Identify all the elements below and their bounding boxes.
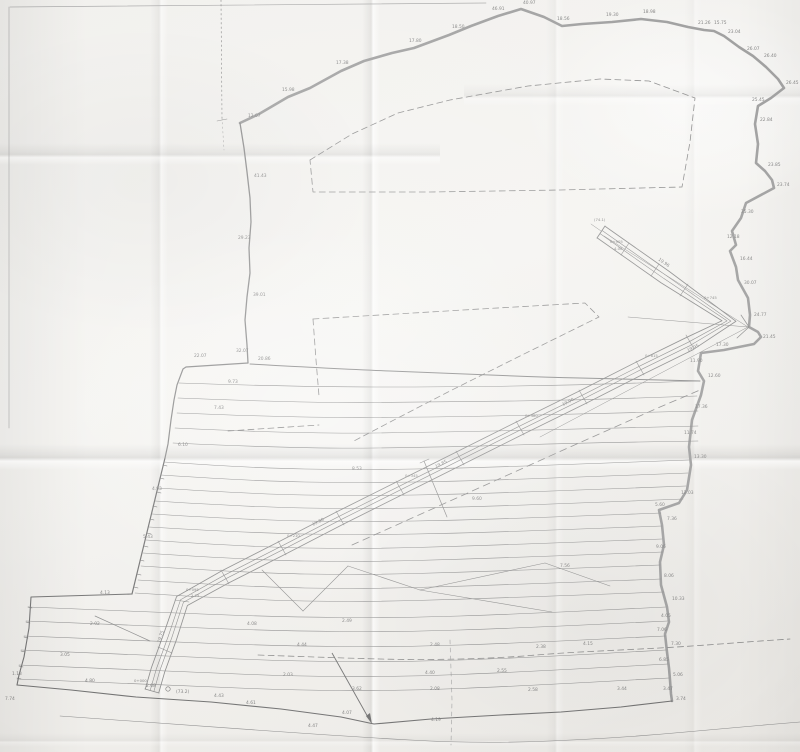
dimension-line [604, 236, 748, 327]
measurement-label: 11.90 [690, 358, 703, 364]
measurement-label: 9.06 [656, 544, 666, 550]
measurement-label: 15.75 [714, 20, 727, 26]
strip-line [141, 565, 660, 574]
strip-line [21, 650, 666, 662]
measurement-label: 2.08 [146, 683, 156, 689]
measurement-label: 6.10 [178, 442, 188, 448]
terrain-line-outside [60, 716, 800, 742]
measurement-label: 4.93 [152, 486, 162, 492]
measurement-label: 2.58 [528, 687, 538, 693]
measurement-label: 8.06 [664, 573, 674, 579]
measurement-label: 4.07 [342, 710, 352, 716]
measurement-label: 12.03 [681, 490, 694, 496]
measurement-label: 4.08 [247, 621, 257, 627]
hatch-tick [144, 546, 148, 547]
measurement-label: 2.02 [90, 621, 100, 627]
measurement-label: (73.2) [176, 689, 189, 695]
measurement-label: 3.74 [676, 696, 686, 702]
measurement-label: 26.40 [764, 53, 777, 59]
measurement-label: 0+480 [525, 413, 538, 418]
measurement-label: 2.55 [497, 668, 507, 674]
benchmark-circle [166, 687, 170, 691]
field-mark [545, 563, 610, 586]
field-mark [348, 566, 420, 590]
corridor-leader [591, 224, 601, 231]
measurement-label: 16.44 [740, 256, 753, 262]
dashed-middle-quad-left [313, 319, 319, 396]
measurement-label: 12.18 [727, 234, 740, 240]
strip-line [173, 441, 698, 448]
measurement-label: 2.48 [430, 642, 440, 648]
measurement-label: 0+905 [610, 239, 623, 244]
measurement-label: 1.13 [12, 671, 22, 677]
corridor-tick [579, 390, 587, 404]
strip-line [177, 411, 698, 418]
measurement-label: 17.80 [409, 38, 422, 44]
measurement-label: 2.08 [430, 686, 440, 692]
strip-line [19, 664, 668, 677]
measurement-label: 23.85 [768, 162, 781, 168]
north-arrow [332, 653, 369, 719]
measurement-label: 12.07 [248, 113, 261, 119]
strip-line [146, 539, 662, 548]
measurement-label: 4.19 [431, 717, 441, 723]
measurement-label: 17.30 [716, 342, 729, 348]
measurement-label: 4.13 [100, 590, 110, 596]
boundary-hatched-diagonal [132, 458, 165, 594]
measurement-label: 12.60 [708, 373, 721, 379]
hatch-tick [157, 492, 161, 493]
measurement-label: 3.62 [352, 686, 362, 692]
strip-line [24, 636, 665, 647]
measurement-label: 29.23 [238, 235, 251, 241]
strip-line [17, 678, 669, 691]
measurement-label: 23.74 [777, 182, 790, 188]
measurement-label: 0+000 [134, 678, 147, 683]
measurement-label: 4.00 [614, 246, 623, 251]
measurement-label: 3.47 [663, 686, 673, 692]
hatch-tick [137, 574, 141, 575]
dashed-middle-short [228, 425, 319, 431]
dash-dot-tail [222, 118, 224, 150]
corridor-edge [159, 226, 736, 693]
corridor-tick [221, 570, 229, 584]
corridor-tick [396, 481, 404, 495]
measurement-label: 4.80 [85, 678, 95, 684]
corridor-tick [636, 361, 644, 375]
measurement-label: 4.43 [214, 693, 224, 699]
measurement-label: 5.43 [143, 534, 153, 540]
corridor-tick [456, 451, 464, 465]
measurement-label: 3.44 [617, 686, 627, 692]
dashed-middle-quad-top [313, 303, 599, 442]
dashed-bottom-vertical [450, 640, 452, 745]
measurement-label: 19.30 [606, 12, 619, 18]
boundary-bottom [17, 685, 672, 724]
measurement-label: 0+615 [645, 353, 658, 358]
measurement-label: 19.80 [311, 517, 325, 528]
measurement-label: 8.53 [352, 466, 362, 472]
measurement-label: 26.07 [747, 46, 760, 52]
measurement-label: 0+210 [287, 533, 300, 538]
measure-diagonal [424, 461, 447, 517]
measurement-label: 2.03 [283, 672, 293, 678]
measurement-label: 24.77 [754, 312, 767, 318]
hatch-tick [147, 533, 151, 534]
measurement-label: 0+745 [704, 295, 717, 300]
boundary-left-upper [240, 123, 251, 363]
measurement-label: 22.84 [760, 117, 773, 123]
measurement-label: 0+345 [405, 473, 418, 478]
corridor-tick [158, 647, 172, 653]
corridor-edge [145, 238, 722, 689]
measurement-label: 7.74 [5, 696, 15, 702]
measurement-label: 7.36 [667, 516, 677, 522]
corridor-end-cap [145, 689, 159, 693]
measurement-label: 18.50 [452, 24, 465, 30]
measurement-label: 19.95 [686, 343, 700, 354]
field-mark [262, 570, 303, 611]
measurement-label: 15.98 [282, 87, 295, 93]
strip-line [143, 552, 663, 561]
measurement-label: 22.07 [194, 353, 207, 359]
measurement-label: 40.97 [523, 0, 536, 6]
hatch-tick [134, 587, 138, 588]
measurement-label: 21.45 [763, 334, 776, 340]
strip-line [135, 592, 664, 601]
strip-line [158, 486, 686, 496]
measurement-label: 5.60 [655, 502, 665, 508]
strip-line [149, 526, 662, 535]
measurement-label: (74.1) [594, 217, 606, 222]
strip-line [28, 607, 666, 618]
frame-line-top [10, 3, 486, 7]
measurement-label: 21.26 [698, 20, 711, 26]
dashed-bottom-wavy [258, 639, 790, 660]
measurement-label: 0+095 [186, 587, 199, 592]
strip-line [178, 396, 697, 403]
measurement-label: 23.04 [728, 29, 741, 35]
measurement-label: 5.06 [673, 672, 683, 678]
measurement-label: 9.60 [472, 496, 482, 502]
measurement-label: 4.05 [661, 613, 671, 619]
measurement-label: 25.30 [741, 209, 754, 215]
measurement-label: 2.49 [342, 618, 352, 624]
plan-drawing: 12.0715.9817.3817.8018.5046.9140.9718.56… [0, 0, 800, 752]
measurement-label: 7.06 [657, 627, 667, 633]
measurement-label: 32.07 [236, 348, 249, 354]
measurement-label: 6.85 [659, 657, 669, 663]
measurement-label: 41.43 [254, 173, 267, 179]
measurement-label: 25.45 [752, 97, 765, 103]
measurement-label: 4.47 [308, 723, 318, 729]
measurement-label: 46.91 [492, 6, 505, 12]
measurement-label: 2.75 [191, 593, 200, 598]
field-mark [420, 590, 552, 612]
measurement-label: 13.30 [694, 454, 707, 460]
field-mark [420, 563, 545, 590]
strip-line [155, 499, 683, 509]
corridor-tick [516, 421, 524, 435]
measurement-label: 2.38 [536, 644, 546, 650]
corridor-tick [278, 541, 286, 555]
measurement-label: 9.73 [228, 379, 238, 385]
measurement-label: 7.43 [214, 405, 224, 411]
measurement-label: 11.74 [684, 430, 697, 436]
measurement-label: 7.30 [671, 641, 681, 647]
strip-line [164, 460, 689, 470]
measurement-label: 10.33 [672, 596, 685, 602]
measurement-label: 26.45 [786, 80, 799, 86]
measurement-label: 30.07 [744, 280, 757, 286]
measurement-label: 4.15 [583, 641, 593, 647]
measure-short [95, 616, 150, 641]
measurement-label: 3.05 [60, 652, 70, 658]
measurement-label: 7.56 [560, 563, 570, 569]
corridor-tick [336, 511, 344, 525]
measurement-label: 18.98 [643, 9, 656, 15]
survey-plan-scan: 12.0715.9817.3817.8018.5046.9140.9718.56… [0, 0, 800, 752]
measurement-label: 17.38 [336, 60, 349, 66]
measurement-label: 4.44 [297, 642, 307, 648]
measurement-label: 4.40 [425, 670, 435, 676]
dash-dot-line [221, 0, 222, 118]
measurement-label: 39.01 [253, 292, 266, 298]
measurement-label: 17.36 [695, 404, 708, 410]
dashed-upper-area [310, 79, 695, 192]
corridor-tip-line [737, 327, 749, 338]
measurement-label: 4.61 [246, 700, 256, 706]
measurement-label: 18.56 [557, 16, 570, 22]
measurement-label: 20.86 [258, 356, 271, 362]
